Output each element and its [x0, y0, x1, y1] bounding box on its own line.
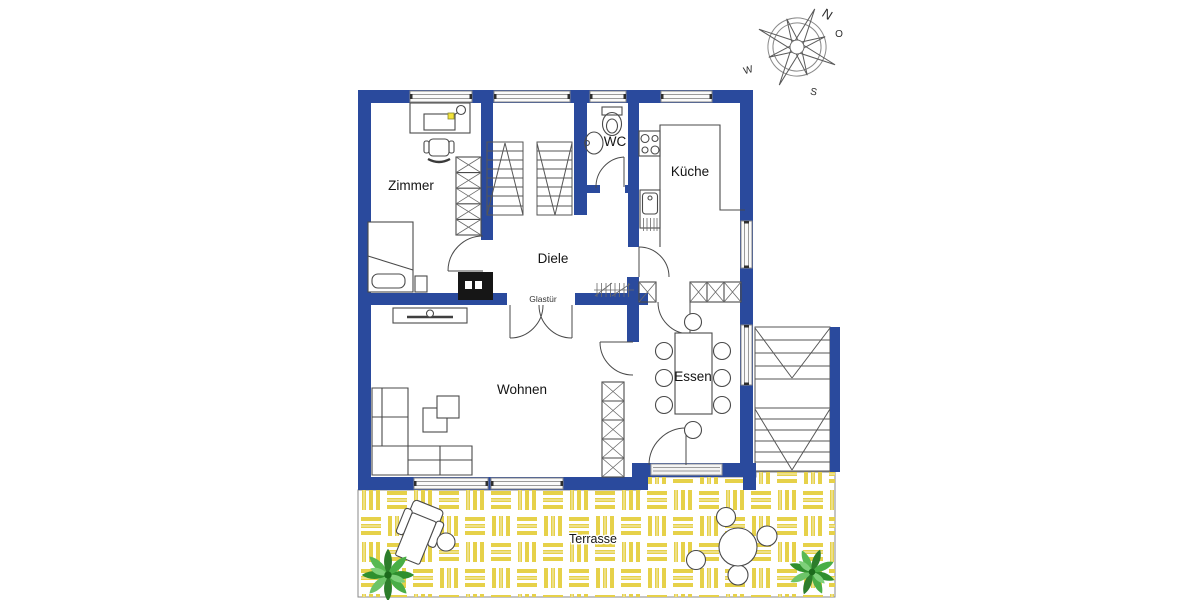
- exterior-stairs: [755, 327, 830, 471]
- room-label-wohnen: Wohnen: [497, 382, 547, 397]
- door-terrace: [649, 428, 686, 465]
- coffee-tables: [423, 396, 459, 432]
- door-wc: [596, 157, 624, 188]
- wall-east: [740, 90, 753, 463]
- window-zimmer-north: [410, 91, 472, 102]
- kitchen-sink-icon: [640, 190, 660, 231]
- interior-stairs: [487, 142, 572, 215]
- side-table: [437, 533, 455, 551]
- wall-stairs-east: [830, 327, 840, 472]
- wall-kueche-west: [628, 103, 639, 247]
- nightstand: [415, 276, 427, 292]
- window-kueche-east: [741, 221, 752, 268]
- kitchen-fixtures: [639, 125, 745, 247]
- door-zimmer: [448, 236, 483, 271]
- room-label-essen: Essen: [674, 369, 712, 384]
- door-wohnen-essen: [600, 342, 633, 375]
- room-label-diele: Diele: [538, 251, 569, 266]
- window-diele-north: [494, 91, 570, 102]
- door-kueche: [639, 247, 669, 277]
- terrace-door-sill: [651, 464, 722, 475]
- compass-north-label: N: [819, 5, 835, 23]
- room-label-terrasse: Terrasse: [569, 532, 617, 546]
- floor-plan-canvas: N O W S Zimmer Küche WC Diele Wohnen Ess…: [0, 0, 1200, 600]
- room-label-zimmer: Zimmer: [388, 178, 434, 193]
- patio-table: [719, 528, 757, 566]
- compass-rose-icon: N O W S: [741, 0, 853, 103]
- chimney-shaft: [458, 272, 493, 300]
- window-wohnen-south-1: [414, 478, 488, 489]
- bed: [368, 222, 413, 292]
- desk: [410, 103, 470, 133]
- compass-south-label: S: [809, 86, 818, 98]
- desk-lamp-icon: [457, 106, 466, 115]
- kitchen-counter: [660, 125, 745, 247]
- compass-west-label: W: [742, 64, 755, 77]
- room-label-kueche: Küche: [671, 164, 709, 179]
- window-kueche-north: [661, 91, 712, 102]
- floor-plan: N O W S Zimmer Küche WC Diele Wohnen Ess…: [0, 0, 1200, 600]
- desk-chair: [424, 139, 454, 162]
- window-wc-north: [590, 91, 626, 102]
- wall-stub-terrace: [743, 477, 756, 490]
- wc-sink-icon: [585, 132, 603, 154]
- wardrobe-zimmer: [456, 157, 481, 235]
- compass-east-label: O: [835, 29, 843, 40]
- toilet-icon: [602, 107, 622, 136]
- wardrobe-wohnen: [602, 382, 624, 477]
- window-essen-east: [741, 325, 752, 385]
- window-wohnen-south-2: [491, 478, 563, 489]
- stove-icon: [639, 131, 660, 156]
- door-glass-double: [510, 305, 572, 338]
- tv-board: [393, 308, 467, 323]
- glass-door-label: Glastür: [529, 294, 557, 304]
- wardrobe-essen-triple: [690, 282, 741, 302]
- wall-wc-west: [574, 103, 587, 215]
- zimmer-furniture: [368, 103, 481, 292]
- room-label-wc: WC: [604, 134, 627, 149]
